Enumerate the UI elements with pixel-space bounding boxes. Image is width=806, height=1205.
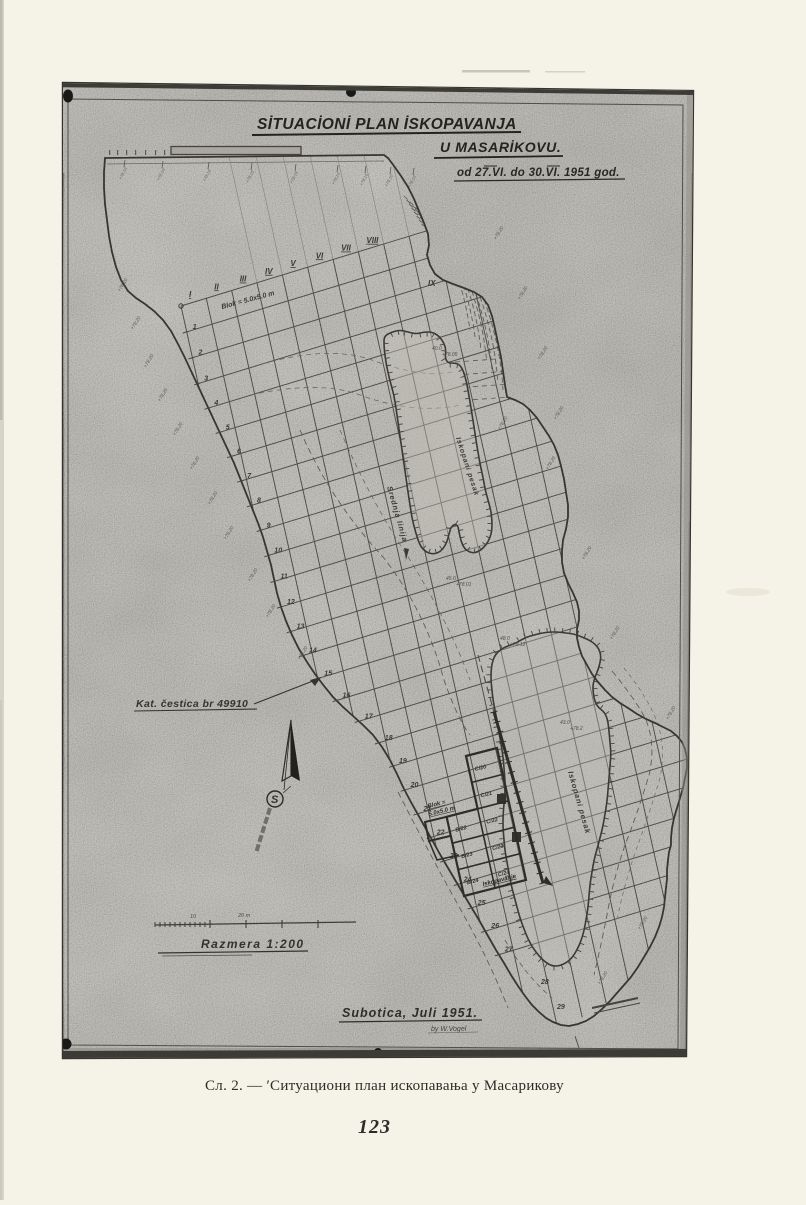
svg-text:48.0: 48.0 [500, 636, 510, 642]
svg-text:2: 2 [198, 350, 203, 357]
svg-text:S: S [271, 794, 279, 806]
svg-text:13: 13 [297, 624, 305, 631]
svg-text:+78.12: +78.12 [510, 642, 526, 648]
svg-text:28: 28 [540, 979, 549, 986]
svg-text:16: 16 [343, 693, 351, 700]
svg-text:VI: VI [316, 251, 324, 260]
svg-text:VII: VII [341, 244, 352, 253]
svg-text:Razmera 1:200: Razmera 1:200 [201, 937, 305, 951]
svg-text:123: 123 [358, 1116, 391, 1138]
svg-text:10: 10 [190, 914, 197, 920]
svg-text:V: V [290, 259, 296, 268]
svg-text:VIII: VIII [366, 236, 379, 245]
svg-text:+78.01: +78.01 [456, 582, 472, 588]
svg-text:II: II [214, 282, 219, 291]
svg-text:od 27.VI. do 30.VI. 1951 god.: od 27.VI. do 30.VI. 1951 god. [457, 167, 620, 179]
svg-text:Subotica, Juli 1951.: Subotica, Juli 1951. [342, 1006, 478, 1020]
svg-text:SİTUACİONİ PLAN İSKOPAVANJA: SİTUACİONİ PLAN İSKOPAVANJA [257, 116, 517, 133]
svg-text:15: 15 [324, 670, 332, 677]
svg-text:12: 12 [287, 599, 295, 606]
svg-text:+78.2: +78.2 [570, 726, 583, 732]
svg-text:40.0: 40.0 [432, 346, 442, 352]
svg-text:U MASARİKOVU.: U MASARİKOVU. [440, 139, 561, 155]
svg-text:III: III [240, 275, 247, 284]
svg-text:4: 4 [213, 400, 218, 407]
svg-text:5: 5 [226, 424, 230, 431]
svg-text:+78.05: +78.05 [442, 352, 458, 358]
svg-text:27: 27 [504, 947, 514, 954]
svg-text:9: 9 [267, 522, 271, 529]
svg-text:IV: IV [265, 267, 273, 276]
svg-text:by W.Vogel: by W.Vogel [431, 1026, 467, 1033]
svg-text:19: 19 [399, 758, 407, 765]
svg-text:1: 1 [193, 324, 197, 331]
svg-text:29: 29 [556, 1004, 565, 1011]
svg-text:17: 17 [365, 713, 374, 720]
svg-text:18: 18 [385, 735, 393, 742]
svg-text:11: 11 [281, 573, 288, 580]
svg-text:3: 3 [204, 376, 208, 383]
svg-text:6: 6 [237, 449, 241, 456]
svg-text:45.0: 45.0 [446, 576, 456, 582]
svg-text:10: 10 [274, 548, 282, 555]
svg-text:IX: IX [428, 279, 436, 288]
svg-text:20: 20 [410, 782, 419, 789]
svg-text:43.0: 43.0 [560, 720, 570, 726]
svg-text:20 m: 20 m [237, 913, 251, 919]
svg-text:26: 26 [490, 923, 499, 930]
svg-text:14: 14 [309, 648, 317, 655]
svg-text:8: 8 [257, 498, 261, 505]
svg-text:25: 25 [477, 900, 486, 907]
svg-text:Сл. 2. — ʹСитуациони план иско: Сл. 2. — ʹСитуациони план ископавања у М… [205, 1078, 564, 1094]
svg-text:Kat. čestica br 49910: Kat. čestica br 49910 [136, 698, 248, 710]
svg-text:22: 22 [436, 829, 445, 836]
